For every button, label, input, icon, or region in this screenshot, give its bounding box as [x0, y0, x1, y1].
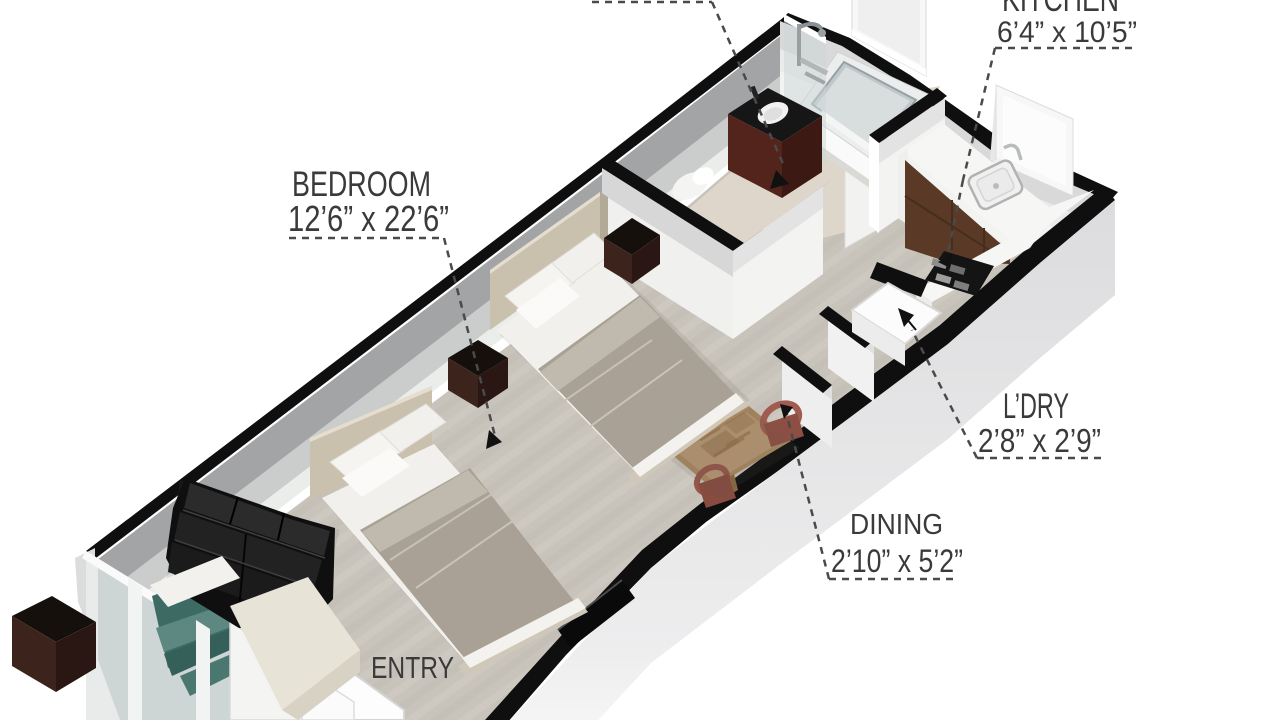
svg-text:L’DRY: L’DRY [1003, 387, 1069, 426]
svg-text:6’4” x 10’5”: 6’4” x 10’5” [997, 16, 1137, 49]
svg-text:12’6” x 22’6”: 12’6” x 22’6” [288, 198, 449, 239]
svg-text:DINING: DINING [850, 509, 943, 541]
svg-text:2’10” x 5’2”: 2’10” x 5’2” [831, 543, 963, 579]
svg-text:2’8” x 2’9”: 2’8” x 2’9” [978, 422, 1101, 459]
svg-text:ENTRY: ENTRY [371, 650, 454, 685]
